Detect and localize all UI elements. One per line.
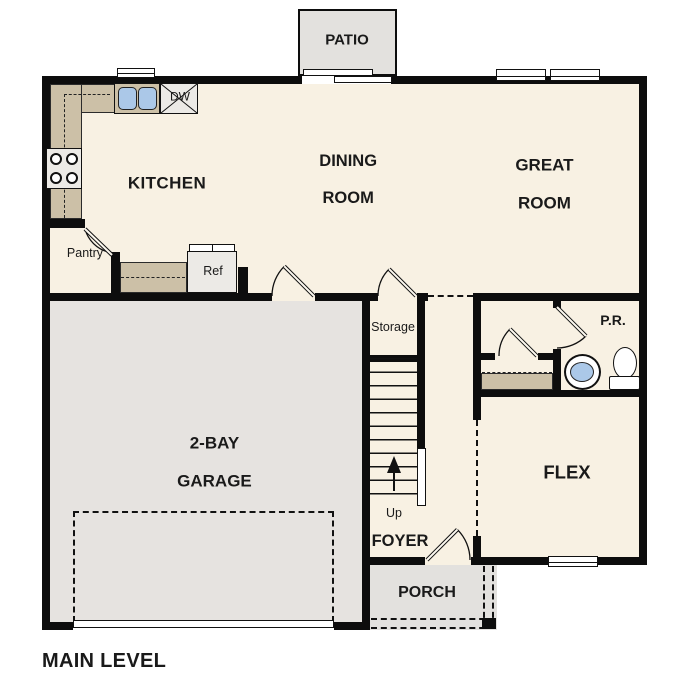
room-label-porch: PORCH (398, 584, 456, 602)
garage-entry-door (272, 266, 314, 296)
front-door (427, 530, 470, 560)
room-label-line: ROOM (518, 194, 571, 213)
room-label-flex: FLEX (543, 463, 590, 484)
room-label-dining: DINING ROOM (301, 134, 377, 226)
storage-door (378, 269, 416, 296)
fixture-label-pantry: Pantry (67, 246, 103, 260)
room-label-line: 2-BAY (190, 433, 239, 452)
room-label-powder-room: P.R. (600, 313, 625, 329)
room-label-great: GREAT ROOM (496, 136, 573, 231)
fixture-label-dishwasher: DW (170, 90, 190, 103)
door-swing-overlay (0, 0, 687, 687)
room-label-line: GARAGE (177, 472, 252, 491)
room-label-storage: Storage (371, 320, 415, 334)
room-label-line: DINING (319, 152, 377, 170)
room-label-foyer: FOYER (372, 532, 429, 550)
room-label-garage: 2-BAY GARAGE (158, 414, 252, 509)
powder-room-door (557, 307, 586, 348)
fixture-label-refrigerator: Ref (203, 264, 222, 278)
closet-door (499, 329, 537, 356)
floor-plan: PATIO KITCHEN DINING ROOM GREAT ROOM Pan… (0, 0, 687, 687)
room-label-kitchen: KITCHEN (128, 173, 206, 192)
room-label-line: ROOM (323, 189, 374, 207)
stairs-up-arrow-icon (387, 456, 401, 491)
stairs-up-label: Up (386, 506, 402, 520)
room-label-line: GREAT (515, 155, 573, 174)
room-label-patio: PATIO (325, 33, 369, 50)
plan-title: MAIN LEVEL (42, 650, 166, 672)
